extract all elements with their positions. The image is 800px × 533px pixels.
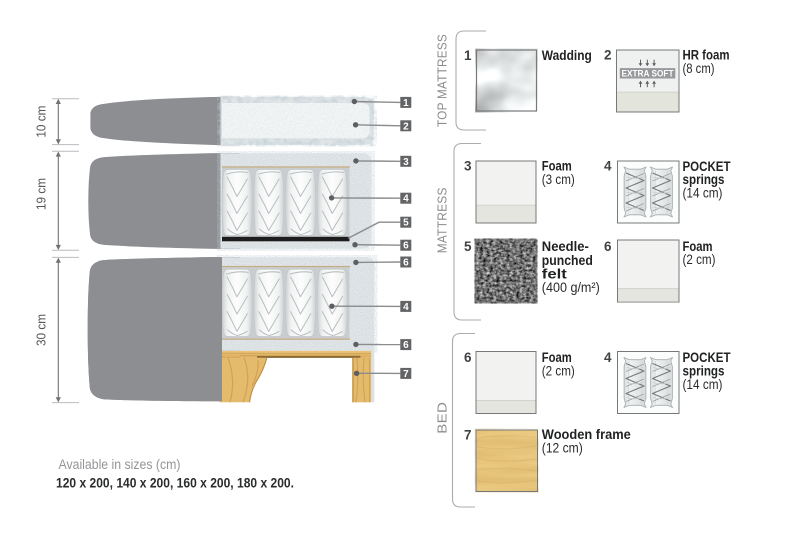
svg-text:(400 g/m²): (400 g/m²): [542, 280, 600, 295]
svg-text:(8 cm): (8 cm): [683, 61, 715, 76]
svg-text:(14 cm): (14 cm): [683, 186, 723, 201]
svg-text:4: 4: [604, 350, 612, 365]
svg-text:(14 cm): (14 cm): [683, 377, 723, 392]
svg-text:30 cm: 30 cm: [34, 314, 49, 346]
svg-text:EXTRA SOFT: EXTRA SOFT: [622, 68, 674, 79]
svg-text:120 x 200, 140 x 200, 160 x 20: 120 x 200, 140 x 200, 160 x 200, 180 x 2…: [56, 475, 294, 490]
svg-text:(12 cm): (12 cm): [542, 440, 583, 455]
svg-text:3: 3: [464, 159, 472, 174]
svg-text:7: 7: [403, 369, 409, 380]
svg-text:BED: BED: [435, 402, 450, 434]
svg-text:3: 3: [403, 157, 409, 168]
svg-text:Available in sizes (cm): Available in sizes (cm): [59, 457, 181, 472]
svg-text:(3 cm): (3 cm): [542, 172, 575, 187]
svg-text:19 cm: 19 cm: [34, 178, 49, 210]
svg-text:6: 6: [464, 350, 472, 365]
svg-text:6: 6: [403, 340, 409, 351]
svg-text:4: 4: [403, 194, 409, 205]
svg-text:TOP MATTRESS: TOP MATTRESS: [435, 34, 450, 127]
svg-text:5: 5: [464, 239, 472, 254]
svg-text:6: 6: [403, 241, 409, 252]
svg-text:(2 cm): (2 cm): [683, 252, 716, 267]
svg-text:MATTRESS: MATTRESS: [435, 187, 450, 253]
svg-text:(2 cm): (2 cm): [542, 363, 575, 378]
svg-text:Wadding: Wadding: [542, 48, 592, 63]
svg-text:6: 6: [604, 239, 612, 254]
svg-text:10 cm: 10 cm: [34, 106, 49, 138]
svg-text:1: 1: [403, 98, 409, 109]
svg-text:1: 1: [464, 48, 472, 63]
svg-text:5: 5: [403, 218, 409, 229]
svg-text:7: 7: [464, 428, 472, 443]
svg-text:4: 4: [403, 302, 409, 313]
svg-text:6: 6: [403, 258, 409, 269]
svg-text:2: 2: [403, 121, 409, 132]
svg-text:2: 2: [604, 48, 612, 63]
svg-text:4: 4: [604, 159, 612, 174]
